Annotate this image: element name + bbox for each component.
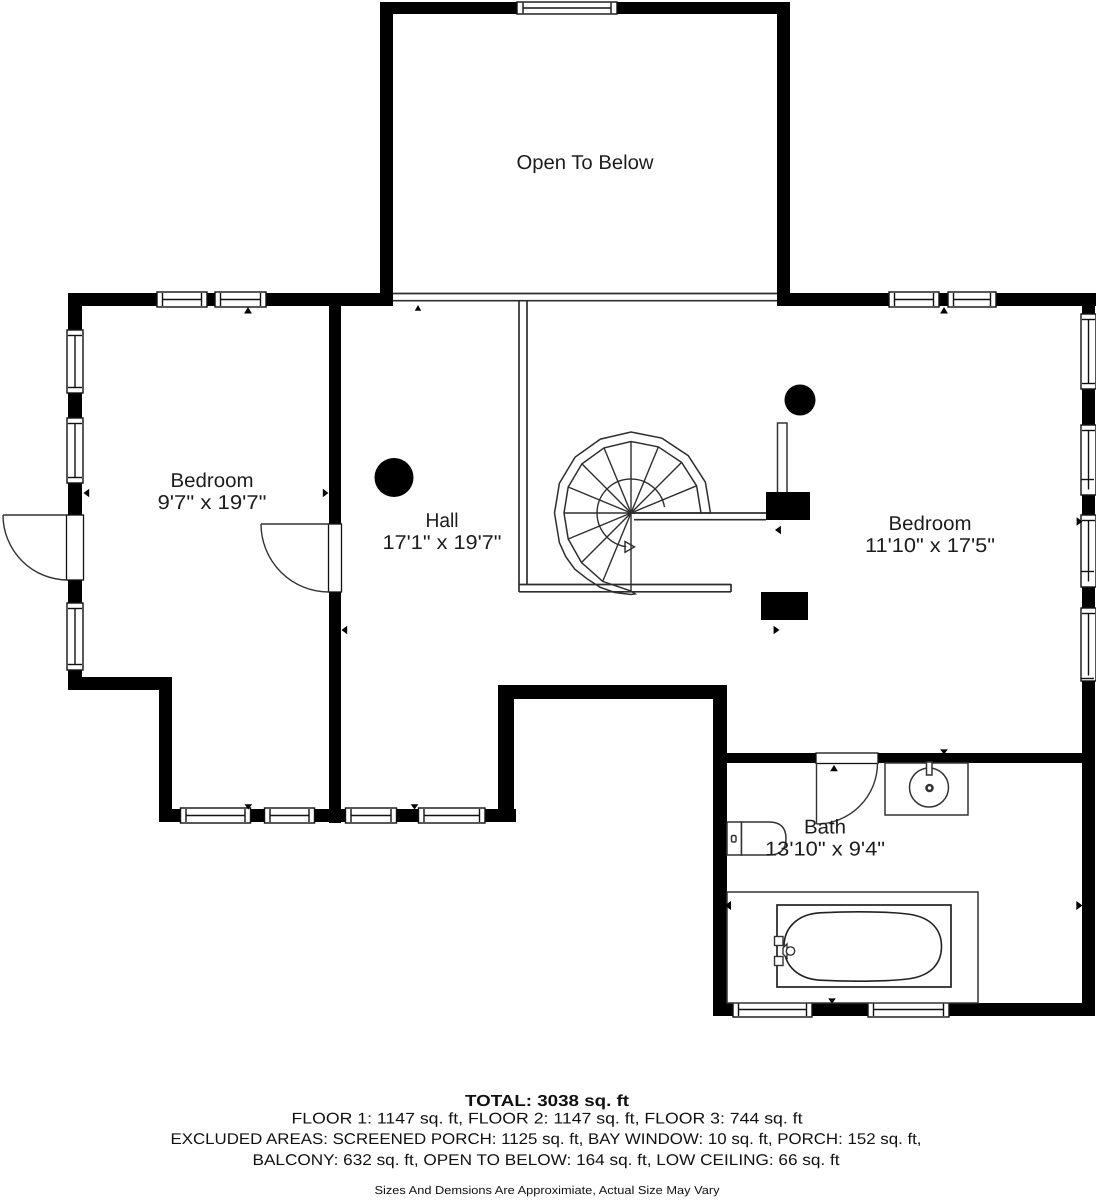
svg-text:9'7" x 19'7": 9'7" x 19'7" [158,492,267,514]
svg-text:Bedroom: Bedroom [889,513,972,535]
svg-text:Bath: Bath [804,817,846,839]
svg-text:Hall: Hall [426,510,459,532]
svg-text:EXCLUDED AREAS: SCREENED PORCH: EXCLUDED AREAS: SCREENED PORCH: 1125 sq.… [171,1131,922,1148]
svg-text:BALCONY: 632 sq. ft, OPEN TO B: BALCONY: 632 sq. ft, OPEN TO BELOW: 164 … [253,1152,841,1169]
svg-text:11'10" x 17'5": 11'10" x 17'5" [865,535,995,557]
svg-text:13'10" x 9'4": 13'10" x 9'4" [765,839,885,861]
svg-text:Sizes And Demsions Are Approxi: Sizes And Demsions Are Approximiate, Act… [375,1185,720,1197]
svg-text:FLOOR 1: 1147 sq. ft, FLOOR 2:: FLOOR 1: 1147 sq. ft, FLOOR 2: 1147 sq. … [292,1111,804,1128]
svg-text:17'1" x 19'7": 17'1" x 19'7" [383,532,502,554]
svg-text:TOTAL: 3038 sq. ft: TOTAL: 3038 sq. ft [465,1093,630,1110]
svg-text:Open To Below: Open To Below [517,152,655,174]
svg-text:Bedroom: Bedroom [171,470,254,492]
